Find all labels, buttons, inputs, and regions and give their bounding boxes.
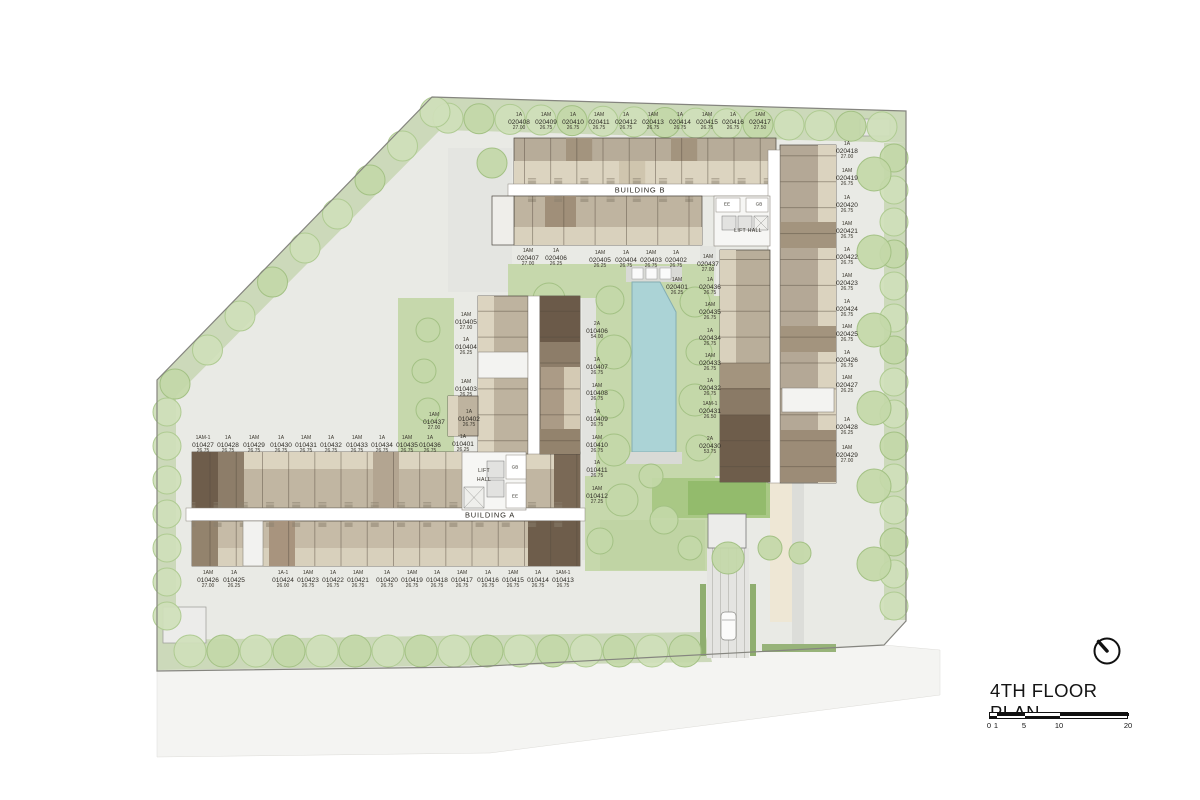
scale-ticks: 0 1 5 10 20 bbox=[989, 721, 1128, 731]
scale-tick-label: 20 bbox=[1124, 721, 1132, 730]
scale-segment bbox=[1060, 713, 1129, 718]
scale-tick-label: 1 bbox=[994, 721, 998, 730]
north-arrow-icon bbox=[1090, 634, 1124, 673]
scale-tick-label: 5 bbox=[1022, 721, 1026, 730]
scale-tick-label: 10 bbox=[1055, 721, 1063, 730]
scale-segment bbox=[997, 713, 1025, 718]
floor-plan-page: 1A 020408 27.00 1AM 020409 26.75 1A 0204… bbox=[0, 0, 1200, 800]
scale-segment bbox=[990, 713, 997, 718]
scale-tick-label: 0 bbox=[987, 721, 991, 730]
scale-bar bbox=[989, 712, 1128, 719]
scale-segment bbox=[1025, 713, 1060, 718]
